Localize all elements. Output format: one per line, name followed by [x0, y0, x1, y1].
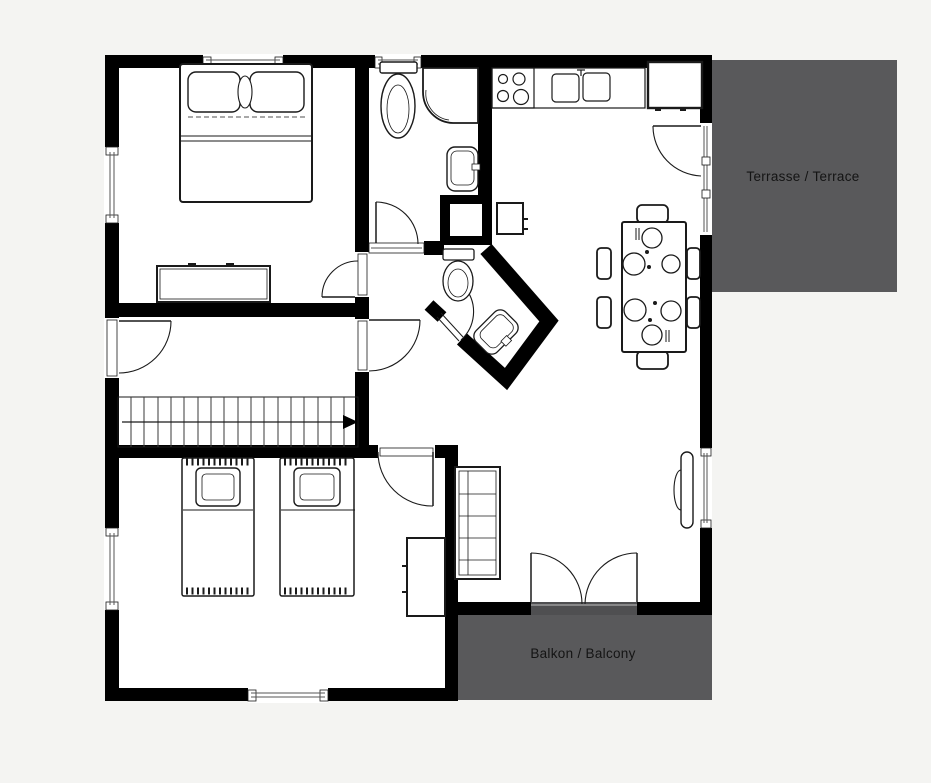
toilet — [380, 62, 417, 138]
wall-cabinet — [497, 203, 528, 234]
wall-bedroom1-bottom — [105, 303, 368, 317]
duct-shaft-inner — [450, 204, 482, 236]
chair-right-1 — [687, 248, 700, 279]
chair-bottom — [637, 351, 668, 369]
kitchen-counter — [492, 68, 645, 108]
chair-top — [637, 205, 668, 223]
wall-wc-hinge-stub — [429, 305, 442, 317]
pillow-left — [188, 72, 240, 112]
wall-center-node — [355, 297, 369, 319]
chair-right-2 — [687, 297, 700, 328]
double-bed — [180, 64, 312, 202]
terrace-label: Terrasse / Terrace — [746, 169, 859, 184]
dresser — [157, 264, 270, 302]
window-terrace-door-glazing — [700, 123, 712, 235]
basin-tap — [472, 164, 480, 170]
window-living-right — [700, 448, 712, 528]
chair-left-1 — [597, 248, 611, 279]
wc-toilet — [443, 249, 474, 301]
floor-plan: Terrasse / Terrace Balkon / Balcony — [0, 0, 931, 783]
pillow-right — [250, 72, 304, 112]
plate — [661, 301, 681, 321]
plate — [662, 255, 680, 273]
balcony-label: Balkon / Balcony — [530, 646, 635, 661]
single-bed-1 — [182, 458, 254, 596]
plate — [642, 228, 662, 248]
refrigerator — [648, 62, 702, 110]
window-bedroom2-bottom — [248, 687, 328, 703]
sideboard — [455, 467, 500, 579]
plate — [624, 299, 646, 321]
plate — [642, 325, 662, 345]
plate — [623, 253, 645, 275]
window-bedroom1-left — [104, 147, 120, 223]
wall-bedroom2-top-right — [435, 445, 458, 458]
single-bed-2 — [280, 458, 355, 596]
wardrobe — [402, 538, 445, 616]
window-bedroom2-left — [104, 528, 120, 610]
wall-center-upper — [355, 55, 369, 252]
wall-kitchen-left — [478, 55, 492, 203]
washbasin — [447, 147, 480, 191]
chair-left-2 — [597, 297, 611, 328]
